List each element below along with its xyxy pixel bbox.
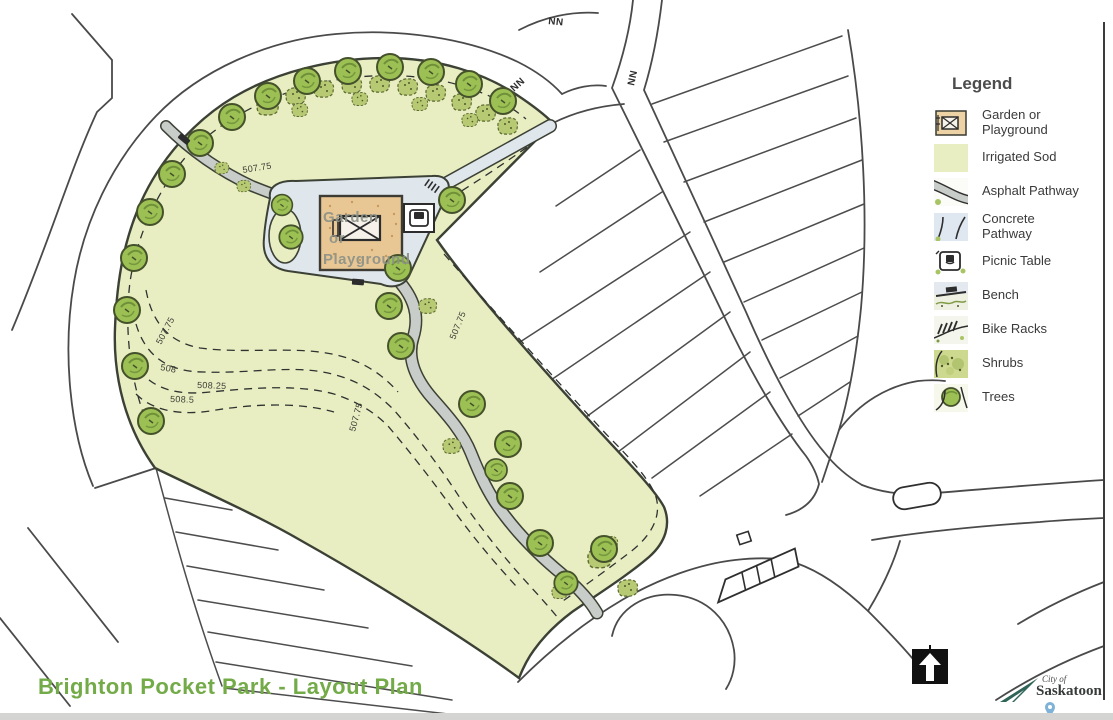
page-edge-border (1103, 22, 1105, 700)
road-bulb (612, 595, 735, 689)
legend-item-picnic-table: Picnic Table (934, 248, 1106, 276)
bench-icon (934, 282, 968, 310)
svg-text:Garden: Garden (323, 209, 379, 226)
logo-saskatoon: Saskatoon (1036, 683, 1102, 700)
bike-racks-icon (934, 316, 968, 344)
legend-item-asphalt-pathway: Asphalt Pathway (934, 178, 1106, 206)
north-arrow-icon (911, 645, 949, 685)
legend-item-garden-playground: Garden or Playground (934, 108, 1106, 138)
road-arterial (822, 30, 865, 482)
traffic-islands (711, 481, 943, 602)
legend-item-bench: Bench (934, 282, 1106, 310)
legend-item-shrubs: Shrubs (934, 350, 1106, 378)
concrete-pathway-icon (934, 213, 968, 241)
asphalt-pathway-icon (934, 178, 968, 206)
legend-title: Legend (952, 74, 1106, 94)
trees-icon (934, 384, 968, 412)
scan-edge-bar (0, 713, 1113, 720)
shrubs-icon (934, 350, 968, 378)
rear-lane-west (612, 0, 819, 515)
legend-item-irrigated-sod: Irrigated Sod (934, 144, 1106, 172)
rear-lane-east (644, 0, 862, 485)
legend-panel: Legend Garden or Playground Irrigated So… (934, 74, 1106, 418)
plan-title: Brighton Pocket Park - Layout Plan (38, 674, 423, 700)
svg-text:Playground: Playground (323, 251, 411, 268)
irrigated-sod-icon (934, 144, 968, 172)
svg-text:508.25: 508.25 (197, 380, 227, 391)
garden-playground-icon (934, 109, 968, 137)
svg-text:NN: NN (548, 16, 565, 29)
road-crossing-marks: NN NN NN (509, 16, 641, 94)
legend-item-bike-racks: Bike Racks (934, 316, 1106, 344)
legend-item-trees: Trees (934, 384, 1106, 412)
lots-east-blockB (652, 36, 864, 416)
park-layout-plan: 507.75 507.75 508 508.25 508.5 507.75 50… (0, 0, 1113, 720)
saskatoon-logo: City of Saskatoon (1000, 672, 1106, 718)
svg-text:NN: NN (626, 69, 640, 86)
legend-item-concrete-pathway: Concrete Pathway (934, 212, 1106, 242)
svg-text:or: or (329, 230, 345, 247)
picnic-table-icon (934, 248, 968, 276)
road-top-left (12, 14, 112, 330)
saskatoon-swoosh-icon (1000, 676, 1040, 704)
bench-marker (352, 279, 364, 286)
svg-text:508.5: 508.5 (170, 394, 194, 405)
lots-southwest-spine (156, 468, 222, 686)
picnic-pad (404, 204, 434, 232)
